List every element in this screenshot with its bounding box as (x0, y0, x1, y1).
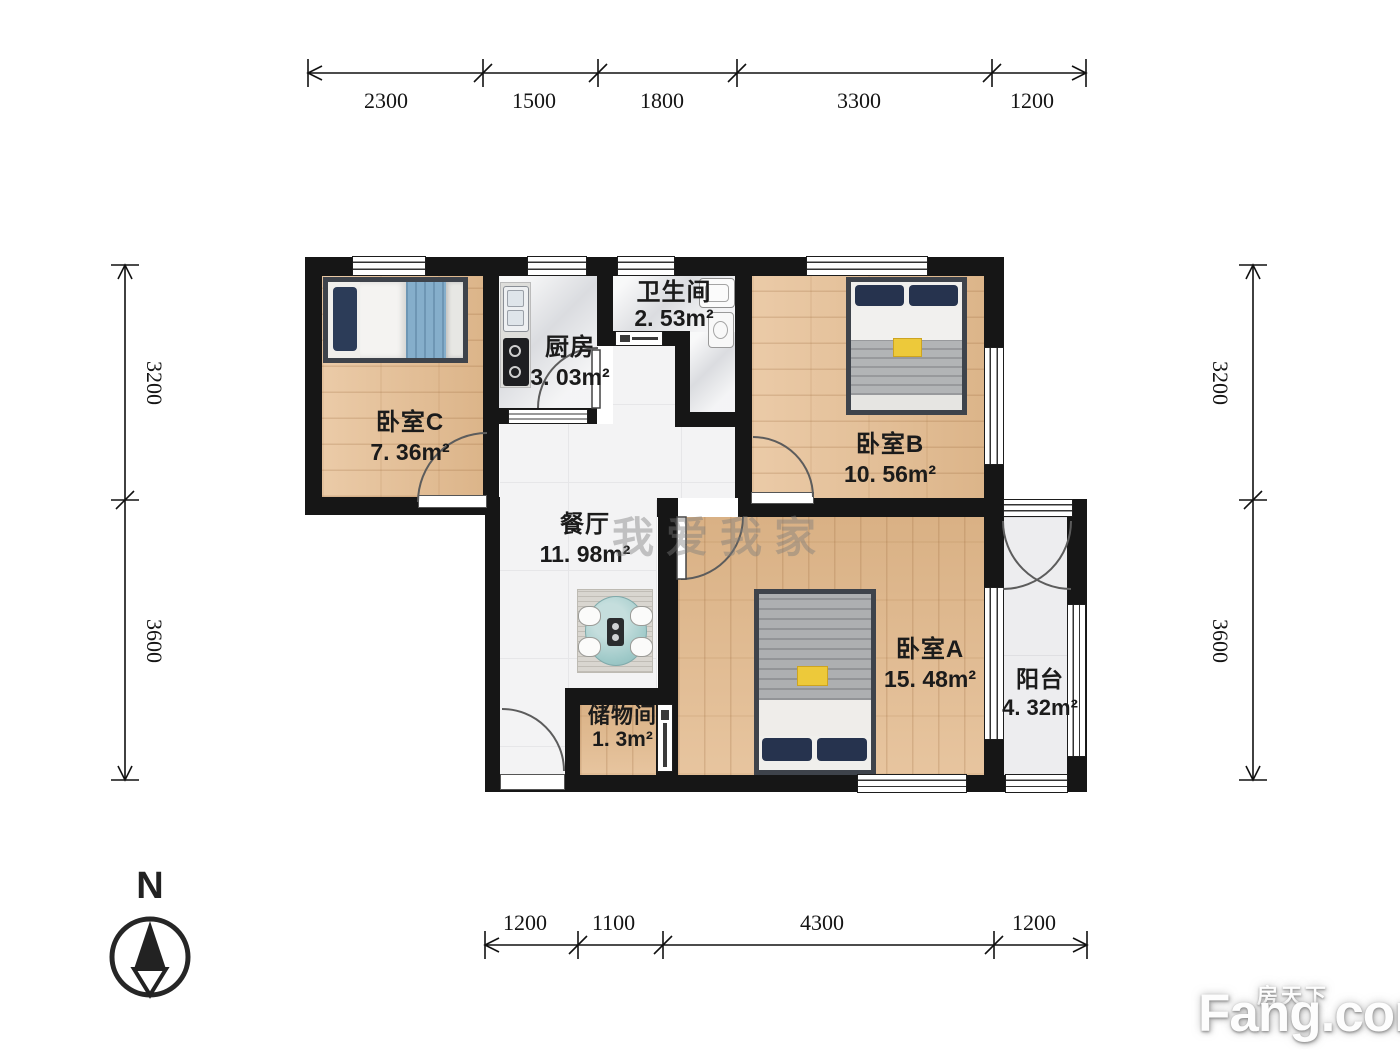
bedroom-c-bed (323, 277, 468, 363)
sheet (759, 700, 871, 736)
room-name: 厨房 (515, 333, 625, 363)
dining-chair (630, 606, 653, 626)
room-name: 卫生间 (613, 280, 735, 306)
entry-floor (500, 688, 565, 775)
sheet-foot (446, 282, 463, 358)
dim-top-2: 1500 (512, 88, 556, 114)
blue-blanket (406, 282, 446, 358)
room-label-bedroom-c: 卧室C 7. 36m² (330, 408, 490, 467)
window (617, 256, 675, 276)
wall (735, 257, 752, 500)
room-area: 1. 3m² (570, 728, 675, 752)
dim-top-1: 2300 (364, 88, 408, 114)
room-area: 15. 48m² (850, 665, 1010, 694)
dim-right-2: 3600 (1207, 619, 1233, 663)
pillow (817, 738, 867, 761)
pillow (762, 738, 812, 761)
dim-top-5: 1200 (1010, 88, 1054, 114)
window (352, 256, 426, 276)
room-label-bedroom-a: 卧室A 15. 48m² (850, 635, 1010, 694)
room-label-bathroom: 卫生间 2. 53m² (613, 280, 735, 332)
door-threshold (418, 495, 487, 508)
dining-chair (578, 637, 601, 657)
dim-top-3: 1800 (640, 88, 684, 114)
sheet (360, 282, 406, 358)
room-name: 卧室C (330, 408, 490, 438)
bedroom-b-bed (846, 277, 967, 415)
room-label-kitchen: 厨房 3. 03m² (515, 333, 625, 392)
wall (485, 497, 500, 792)
dim-left-1: 3200 (141, 361, 167, 405)
wall (305, 257, 322, 515)
window (806, 256, 928, 276)
wall (483, 257, 499, 515)
sheet (851, 308, 962, 340)
room-name: 阳台 (995, 665, 1085, 694)
room-label-balcony: 阳台 4. 32m² (995, 665, 1085, 721)
room-area: 4. 32m² (995, 694, 1085, 722)
window (1003, 499, 1073, 517)
room-area: 2. 53m² (613, 306, 735, 331)
sheet-foot (851, 395, 962, 410)
floor-plan-image: 卧室C 7. 36m² 厨房 3. 03m² 卫生间 2. 53m² 卧室B 1… (0, 0, 1400, 1050)
dining-strip-floor (613, 424, 752, 500)
compass-north-label: N (95, 865, 205, 908)
window (984, 347, 1004, 465)
dim-top-4: 3300 (837, 88, 881, 114)
pillow (909, 285, 958, 306)
window (857, 774, 967, 793)
dim-bottom-4: 1200 (1012, 910, 1056, 936)
yellow-item (797, 666, 828, 686)
room-area: 7. 36m² (330, 438, 490, 467)
window (527, 256, 587, 276)
pillow (333, 287, 357, 351)
balcony-floor (1003, 517, 1067, 775)
brand-watermark-en: Fang.com (1198, 983, 1400, 1044)
table-centerpiece (607, 618, 624, 646)
kitchen-pass-window (508, 409, 588, 424)
compass: N (95, 865, 215, 1015)
plan-watermark: 我爱我家 (612, 504, 828, 565)
compass-rose-icon (95, 907, 215, 1017)
dim-bottom-2: 1100 (592, 910, 635, 936)
room-label-bedroom-b: 卧室B 10. 56m² (810, 430, 970, 489)
wall (675, 346, 690, 412)
room-label-storage: 储物间 1. 3m² (570, 703, 675, 752)
window (1005, 774, 1068, 793)
dim-left-2: 3600 (141, 619, 167, 663)
room-area: 3. 03m² (515, 363, 625, 392)
room-name: 卧室A (850, 635, 1010, 665)
wall (485, 775, 1087, 792)
kitchen-sink (503, 286, 529, 332)
door-threshold (500, 774, 565, 790)
dining-chair (630, 637, 653, 657)
yellow-item (893, 338, 922, 357)
dim-bottom-1: 1200 (503, 910, 547, 936)
door-threshold (751, 492, 814, 504)
dining-chair (578, 606, 601, 626)
room-area: 10. 56m² (810, 460, 970, 489)
dim-right-1: 3200 (1207, 361, 1233, 405)
room-name: 卧室B (810, 430, 970, 460)
pillow (855, 285, 904, 306)
dim-bottom-3: 4300 (800, 910, 844, 936)
room-name: 储物间 (570, 703, 675, 728)
